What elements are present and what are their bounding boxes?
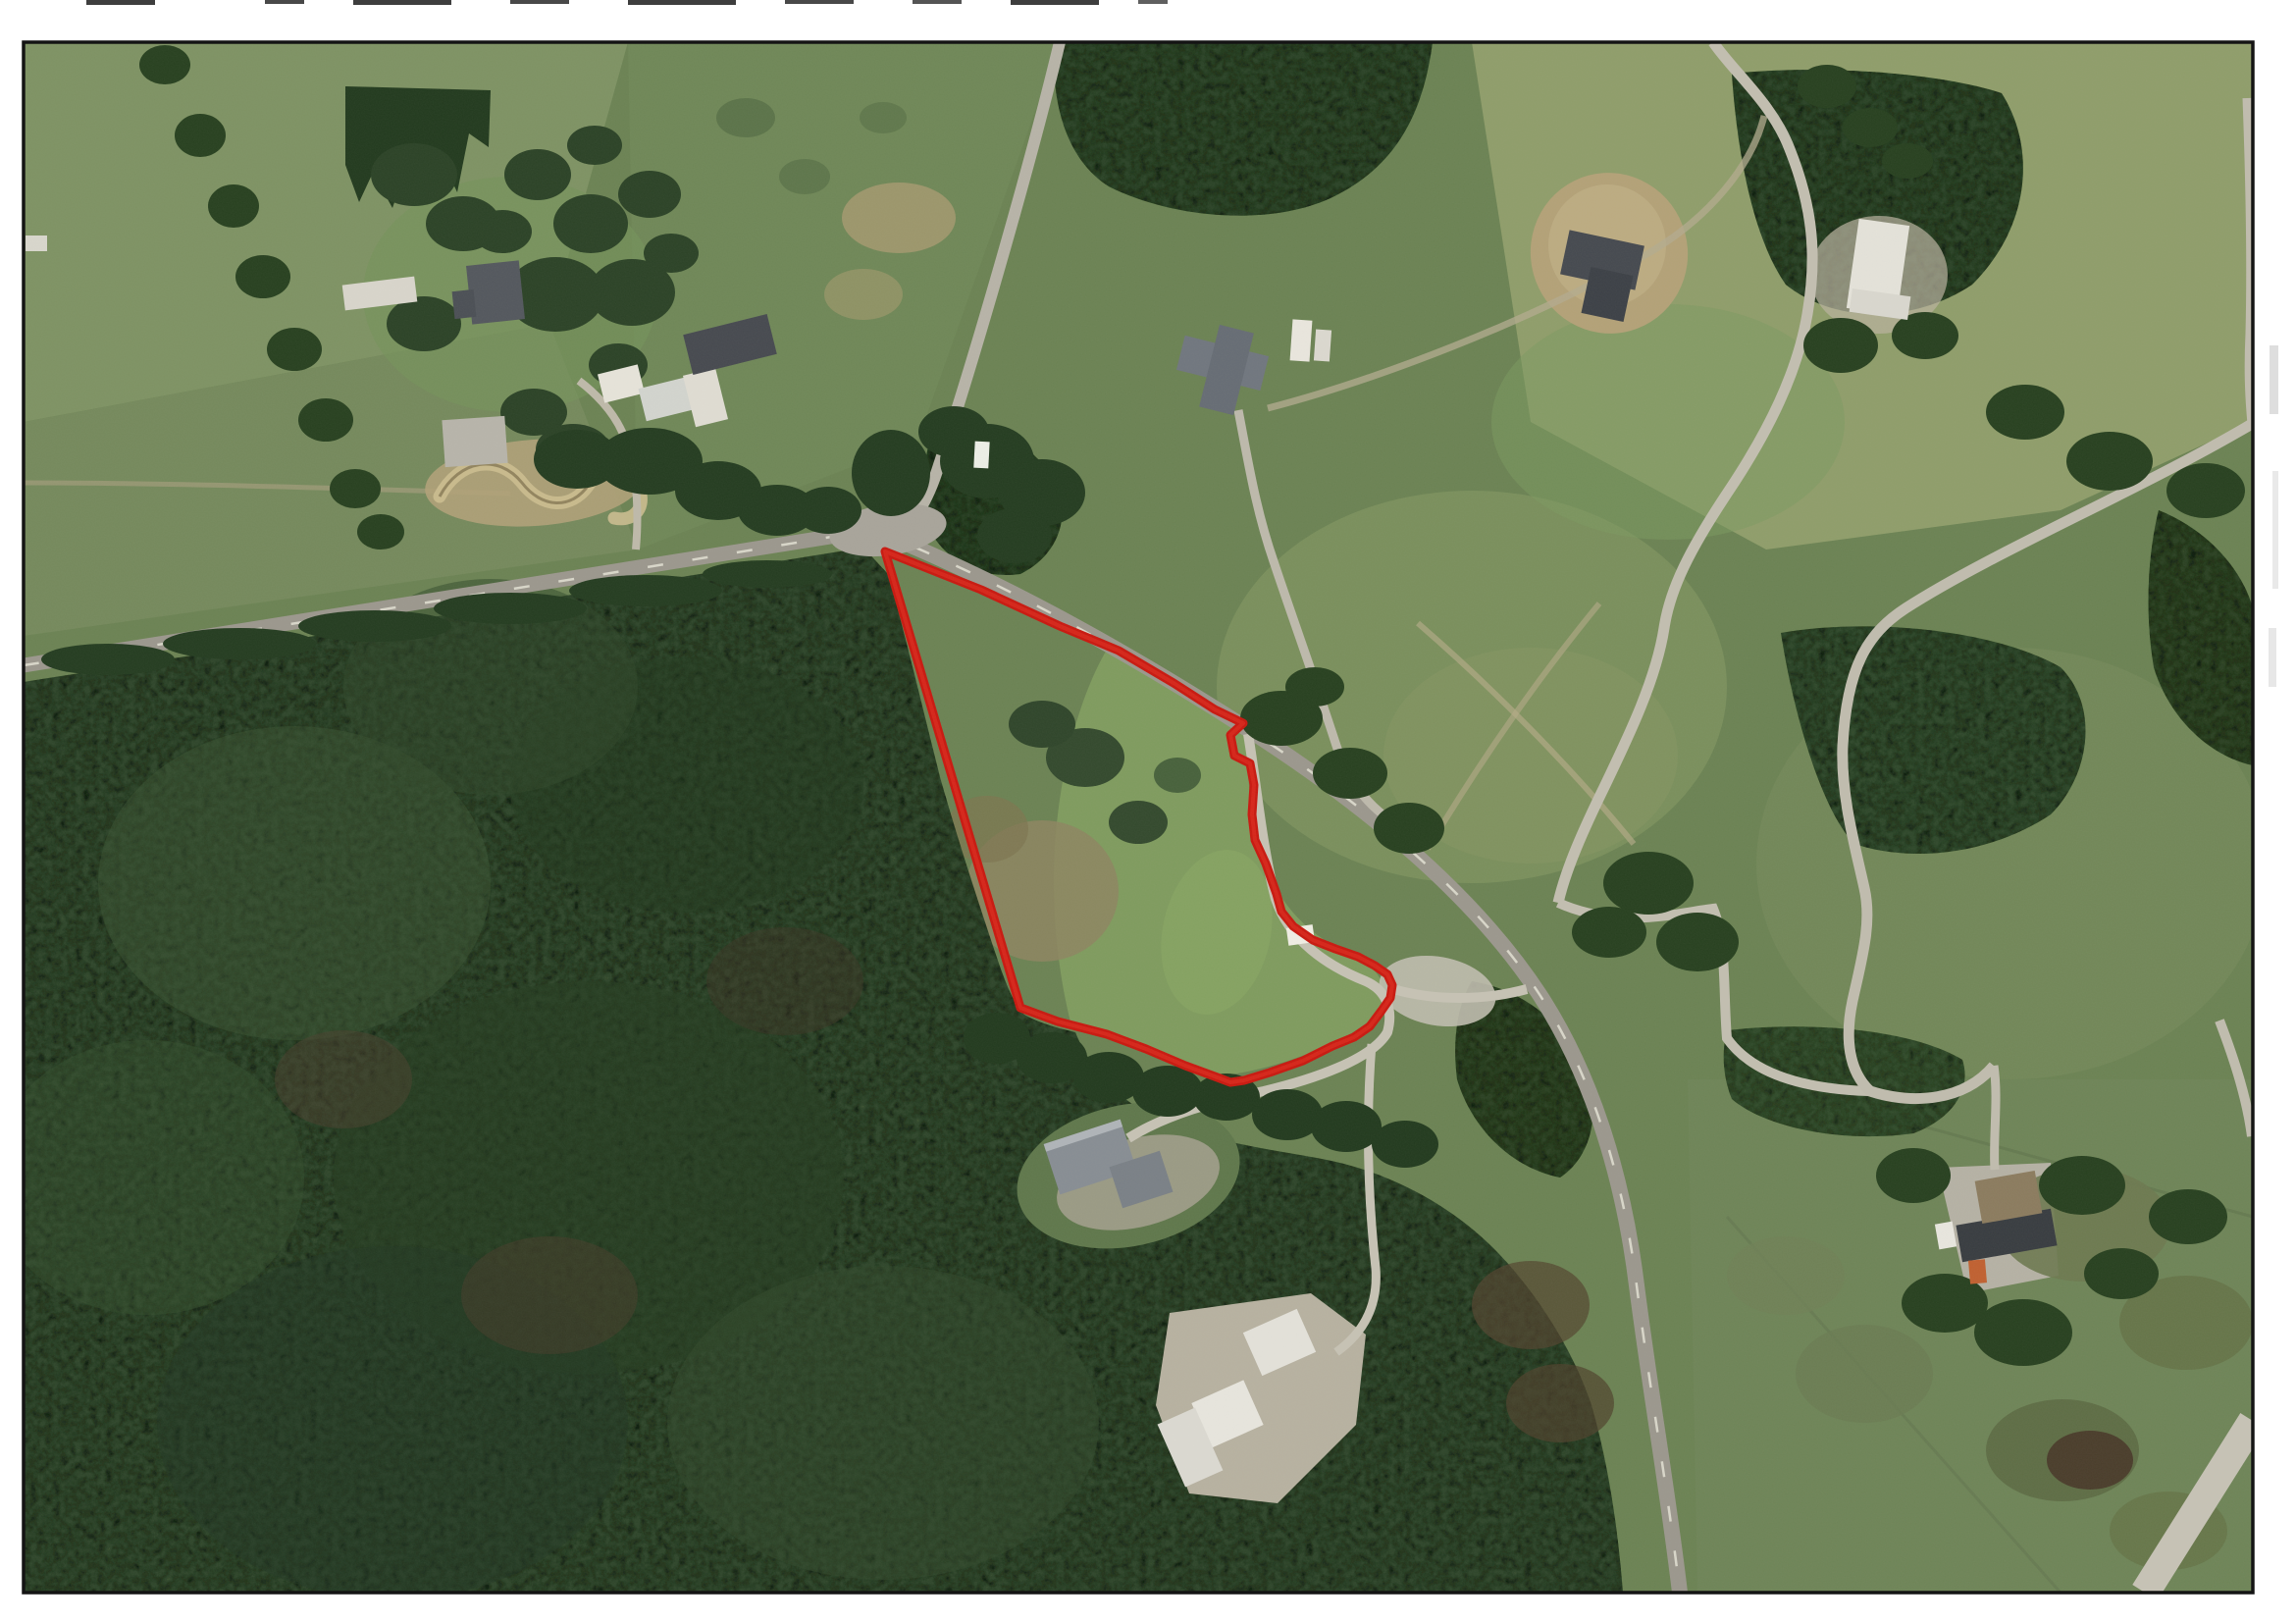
aerial-photo: [0, 0, 2296, 1623]
scan-mark-9: [1138, 0, 1168, 4]
scan-mark-3: [353, 0, 451, 5]
scan-mark-1: [86, 0, 155, 5]
photo-grain: [24, 42, 2253, 1593]
aerial-photo-svg: [0, 0, 2296, 1623]
scan-mark-7: [913, 0, 962, 4]
scan-smudge-right-1: [2270, 345, 2278, 414]
scan-mark-2: [265, 0, 304, 4]
margin-right: [2253, 0, 2296, 1623]
scan-mark-5: [628, 0, 736, 5]
margin-bottom: [0, 1593, 2296, 1623]
scan-smudge-right-3: [2269, 628, 2276, 687]
margin-top: [0, 0, 2296, 42]
scanned-page: [0, 0, 2296, 1623]
scan-mark-4: [510, 0, 569, 4]
scan-smudge-right-2: [2272, 471, 2278, 589]
scan-mark-8: [1011, 0, 1099, 5]
margin-left: [0, 0, 24, 1623]
scan-mark-6: [785, 0, 854, 4]
